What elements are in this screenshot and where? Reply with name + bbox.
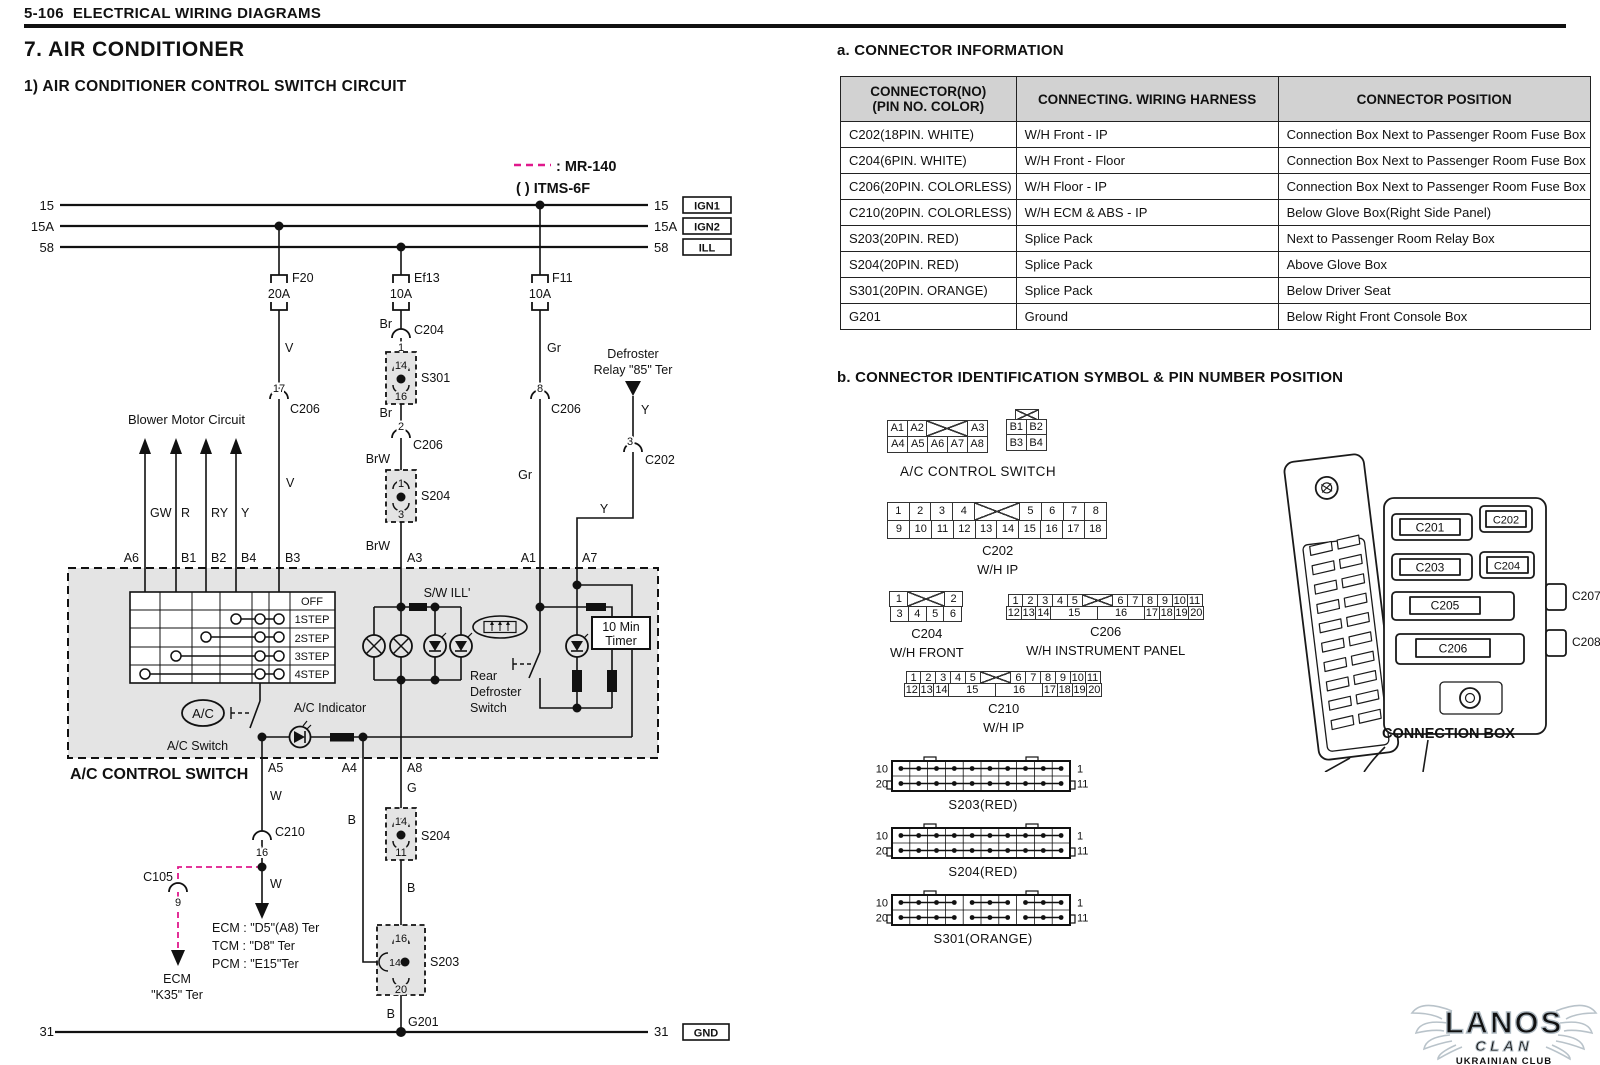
- splice-pack-caption: S301(ORANGE): [868, 931, 1098, 946]
- table-row: G201GroundBelow Right Front Console Box: [841, 304, 1591, 330]
- table-row: C206(20PIN. COLORLESS)W/H Floor - IPConn…: [841, 174, 1591, 200]
- conn-c105: C105: [143, 870, 173, 884]
- fuse-f11-amp: 10A: [529, 287, 552, 301]
- screw-icon: [1460, 688, 1480, 708]
- rear-def-label-1: Rear: [470, 669, 497, 683]
- watermark-name: LANOS: [1445, 1005, 1564, 1040]
- cbox-c203: C203: [1416, 561, 1445, 575]
- splice-s203: 16 14 20 S203: [377, 925, 459, 996]
- step-off: OFF: [301, 596, 323, 608]
- pin-c202-3: 3: [627, 436, 633, 448]
- wire-w2: W: [270, 877, 282, 891]
- svg-text:20: 20: [876, 779, 888, 791]
- legend-dash-label: : MR-140: [556, 159, 616, 175]
- svg-text:10: 10: [876, 764, 888, 776]
- bus-31-right: 31: [654, 1024, 668, 1039]
- wire-gr2: Gr: [518, 468, 532, 482]
- down-arrow-icon: [255, 903, 269, 919]
- wire-b2: B: [387, 1007, 395, 1021]
- wire-r: R: [181, 506, 190, 520]
- defroster-relay-feed: Defroster Relay "85" Ter: [594, 347, 673, 396]
- wire-brw1: BrW: [366, 452, 391, 466]
- conn-c202: C202: [645, 453, 675, 467]
- section-a-title: a. CONNECTOR INFORMATION: [837, 42, 1064, 59]
- ac-switch-label: A/C Switch: [167, 739, 228, 753]
- pcm-e15-label: PCM : "E15"Ter: [212, 957, 299, 971]
- timer-label-1: 10 Min: [602, 620, 640, 634]
- connector-stack: [1384, 498, 1566, 734]
- splice-s204u-top: 1: [398, 478, 404, 490]
- ac-control-switch-title: A/C CONTROL SWITCH: [70, 766, 248, 783]
- conn-c204: C204: [414, 323, 444, 337]
- conn-c206-b: C206: [413, 438, 443, 452]
- pin-a4: A4: [342, 761, 357, 775]
- splice-pack-caption: S204(RED): [868, 864, 1098, 879]
- connection-box-art: C201 C202 C203 C204 C205 C206 C207 C208 …: [1280, 442, 1600, 772]
- rear-def-label-3: Switch: [470, 701, 507, 715]
- bus-31-left: 31: [40, 1024, 54, 1039]
- tag-gnd: GND: [694, 1028, 719, 1040]
- wire-gw: GW: [150, 506, 172, 520]
- blower-motor-circuit: Blower Motor Circuit: [128, 412, 245, 454]
- splice-s204-lower: 14 11 S204: [386, 808, 450, 860]
- wire-br1: Br: [380, 317, 393, 331]
- legend-paren-label: ( ) ITMS-6F: [516, 181, 590, 197]
- cbox-c204: C204: [1494, 561, 1520, 573]
- cbox-c201: C201: [1416, 521, 1445, 535]
- splice-s301: 14 16 S301: [386, 352, 450, 404]
- wire-gr1: Gr: [547, 341, 561, 355]
- bus-58-right: 58: [654, 240, 668, 255]
- svg-text:20: 20: [876, 846, 888, 858]
- pin-c206-2: 2: [398, 421, 404, 433]
- sw-ill-label: S/W ILL': [424, 586, 471, 600]
- cbox-c206: C206: [1439, 642, 1468, 656]
- splice-s204l-name: S204: [421, 829, 450, 843]
- connection-box-caption: CONNECTION BOX: [1382, 726, 1515, 742]
- splice-s204-upper: 1 3 S204: [386, 470, 450, 522]
- watermark-logo: LANOS CLAN UKRAINIAN CLUB: [1408, 975, 1600, 1065]
- splice-s301-bottom: 16: [395, 391, 407, 403]
- splice-s204l-bottom: 11: [395, 847, 406, 859]
- splice-s204u-bottom: 3: [398, 509, 404, 521]
- timer-label-2: Timer: [605, 634, 636, 648]
- svg-text:11: 11: [1077, 779, 1088, 791]
- pin-b4: B4: [241, 551, 256, 565]
- pin-grid-ac-b: B1B2B3B4: [1007, 409, 1047, 451]
- ecm-destinations: ECM : "D5"(A8) Ter TCM : "D8" Ter PCM : …: [151, 903, 319, 1002]
- step-1: 1STEP: [295, 614, 330, 626]
- wire-w1: W: [270, 789, 282, 803]
- svg-text:1: 1: [1077, 898, 1083, 910]
- bus-15a-left: 15A: [31, 219, 54, 234]
- step-2: 2STEP: [295, 633, 330, 645]
- step-4: 4STEP: [295, 669, 330, 681]
- pin-b2: B2: [211, 551, 226, 565]
- resistor-icon: [572, 670, 582, 692]
- ac-indicator-label: A/C Indicator: [294, 701, 366, 715]
- svg-text:10: 10: [876, 898, 888, 910]
- cbox-c205: C205: [1431, 599, 1460, 613]
- fuse-f11-name: F11: [552, 271, 573, 285]
- bus-15a-right: 15A: [654, 219, 677, 234]
- watermark-sub: CLAN: [1475, 1038, 1533, 1055]
- splice-s301-top: 14: [395, 360, 407, 372]
- fuse-f20-name: F20: [292, 271, 314, 285]
- pin-c210-16: 16: [256, 847, 268, 859]
- conn-c206-c: C206: [551, 402, 581, 416]
- bus-15-right: 15: [654, 198, 668, 213]
- col-harness: CONNECTING. WIRING HARNESS: [1016, 77, 1278, 122]
- section-b-title: b. CONNECTOR IDENTIFICATION SYMBOL & PIN…: [837, 369, 1343, 386]
- table-row: C204(6PIN. WHITE)W/H Front - FloorConnec…: [841, 148, 1591, 174]
- fuse-ef13-name: Ef13: [414, 271, 440, 285]
- watermark-club: UKRAINIAN CLUB: [1456, 1056, 1552, 1065]
- svg-text:11: 11: [1077, 913, 1088, 925]
- pin-grid-c206: 1234567891011121314151617181920C206W/H I…: [1007, 595, 1204, 658]
- splice-s204l-top: 14: [395, 816, 407, 828]
- ecm-label: ECM: [163, 972, 191, 986]
- tag-ill: ILL: [699, 243, 716, 255]
- manual-page: 5-106 ELECTRICAL WIRING DIAGRAMS 7. AIR …: [0, 0, 1600, 1065]
- ground-g201: G201: [408, 1015, 439, 1029]
- ecm-d5-label: ECM : "D5"(A8) Ter: [212, 921, 319, 935]
- wire-v2: V: [286, 476, 295, 490]
- connector-table-body: C202(18PIN. WHITE)W/H Front - IPConnecti…: [841, 122, 1591, 330]
- splice-s203-bottom: 20: [395, 984, 407, 996]
- splice-pack-caption: S203(RED): [868, 797, 1098, 812]
- option-wires-mr140: [178, 867, 262, 948]
- cbox-c208: C208: [1572, 635, 1600, 649]
- tag-ign1: IGN1: [694, 201, 720, 213]
- splice-s203-name: S203: [430, 955, 459, 969]
- tcm-d8-label: TCM : "D8" Ter: [212, 939, 295, 953]
- wire-b-a4: B: [348, 813, 356, 827]
- splice-pack-S204(RED): 1020111S204(RED): [868, 823, 1098, 879]
- conn-c210: C210: [275, 825, 305, 839]
- table-row: C210(20PIN. COLORLESS)W/H ECM & ABS - IP…: [841, 200, 1591, 226]
- resistor-icon: [607, 670, 617, 692]
- wire-b1: B: [407, 881, 415, 895]
- pin-b1: B1: [181, 551, 196, 565]
- connector-table: CONNECTOR(NO) (PIN NO. COLOR) CONNECTING…: [840, 76, 1591, 330]
- pin-c206-17: 17: [273, 383, 285, 395]
- splice-s203-left: 14: [389, 957, 401, 969]
- wire-yb: Y: [241, 506, 250, 520]
- rear-def-label-2: Defroster: [470, 685, 521, 699]
- pin-a8: A8: [407, 761, 422, 775]
- pin-grid-c210: 1234567891011121314151617181920C210W/H I…: [905, 672, 1102, 735]
- wire-g: G: [407, 781, 417, 795]
- wire-v1: V: [285, 341, 294, 355]
- bus-58-left: 58: [40, 240, 54, 255]
- fuse-f20-amp: 20A: [268, 287, 291, 301]
- defroster-relay-line2: Relay "85" Ter: [594, 363, 673, 377]
- pin-b3: B3: [285, 551, 300, 565]
- svg-text:1: 1: [1077, 831, 1083, 843]
- cbox-c202: C202: [1493, 515, 1519, 527]
- col-connector-no: CONNECTOR(NO) (PIN NO. COLOR): [841, 77, 1017, 122]
- splice-pack-S203(RED): 1020111S203(RED): [868, 756, 1098, 812]
- pin-grid-ac-a: A1A2A3A4A5A6A7A8: [888, 421, 988, 453]
- defroster-relay-line1: Defroster: [607, 347, 658, 361]
- legend: : MR-140 ( ) ITMS-6F: [514, 159, 616, 197]
- pin-a5: A5: [268, 761, 283, 775]
- fuse-ef13-amp: 10A: [390, 287, 413, 301]
- col-position: CONNECTOR POSITION: [1278, 77, 1590, 122]
- tag-ign2: IGN2: [694, 222, 720, 234]
- ac-button-label: A/C: [192, 706, 214, 721]
- pin-c105-9: 9: [175, 897, 181, 909]
- cbox-c207: C207: [1572, 589, 1600, 603]
- table-row: S203(20PIN. RED)Splice PackNext to Passe…: [841, 226, 1591, 252]
- ac-switch-grid-caption: A/C CONTROL SWITCH: [888, 464, 1068, 479]
- splice-pack-S301(ORANGE): 1020111S301(ORANGE): [868, 890, 1098, 946]
- fan-switch-matrix: OFF 1STEP 2STEP 3STEP 4STEP: [130, 592, 335, 683]
- table-row: S301(20PIN. ORANGE)Splice PackBelow Driv…: [841, 278, 1591, 304]
- k35-label: "K35" Ter: [151, 988, 203, 1002]
- splice-s204u-name: S204: [421, 489, 450, 503]
- resistor-icon: [409, 603, 427, 611]
- wire-y1: Y: [641, 403, 650, 417]
- pin-a3: A3: [407, 551, 422, 565]
- svg-text:11: 11: [1077, 846, 1088, 858]
- svg-text:20: 20: [876, 913, 888, 925]
- wire-y2: Y: [600, 502, 609, 516]
- svg-text:10: 10: [876, 831, 888, 843]
- blower-label: Blower Motor Circuit: [128, 412, 245, 427]
- splice-s301-name: S301: [421, 371, 450, 385]
- wiring-diagram: : MR-140 ( ) ITMS-6F 15 15A 58 31 15 15A…: [0, 0, 830, 1065]
- conn-c206-a: C206: [290, 402, 320, 416]
- step-3: 3STEP: [295, 651, 330, 663]
- pin-grid-c202: 123456789101112131415161718C202W/H IP: [888, 503, 1107, 577]
- down-arrow-icon: [171, 950, 185, 966]
- pin-c206-8: 8: [537, 383, 543, 395]
- wire-brw2: BrW: [366, 539, 391, 553]
- down-arrow-icon: [625, 381, 641, 396]
- splice-s203-top: 16: [395, 933, 407, 945]
- fuse-panel: [1283, 453, 1399, 761]
- svg-text:1: 1: [1077, 764, 1083, 776]
- resistor-icon: [586, 603, 606, 611]
- bus-15-left: 15: [40, 198, 54, 213]
- resistor-icon: [330, 733, 354, 742]
- wire-br2: Br: [380, 406, 393, 420]
- pin-a1: A1: [521, 551, 536, 565]
- pin-a6: A6: [124, 551, 139, 565]
- table-row: S204(20PIN. RED)Splice PackAbove Glove B…: [841, 252, 1591, 278]
- table-row: C202(18PIN. WHITE)W/H Front - IPConnecti…: [841, 122, 1591, 148]
- wire-ry: RY: [211, 506, 229, 520]
- pin-grid-c204: 123456C204W/H FRONT: [890, 592, 964, 660]
- pin-a7: A7: [582, 551, 597, 565]
